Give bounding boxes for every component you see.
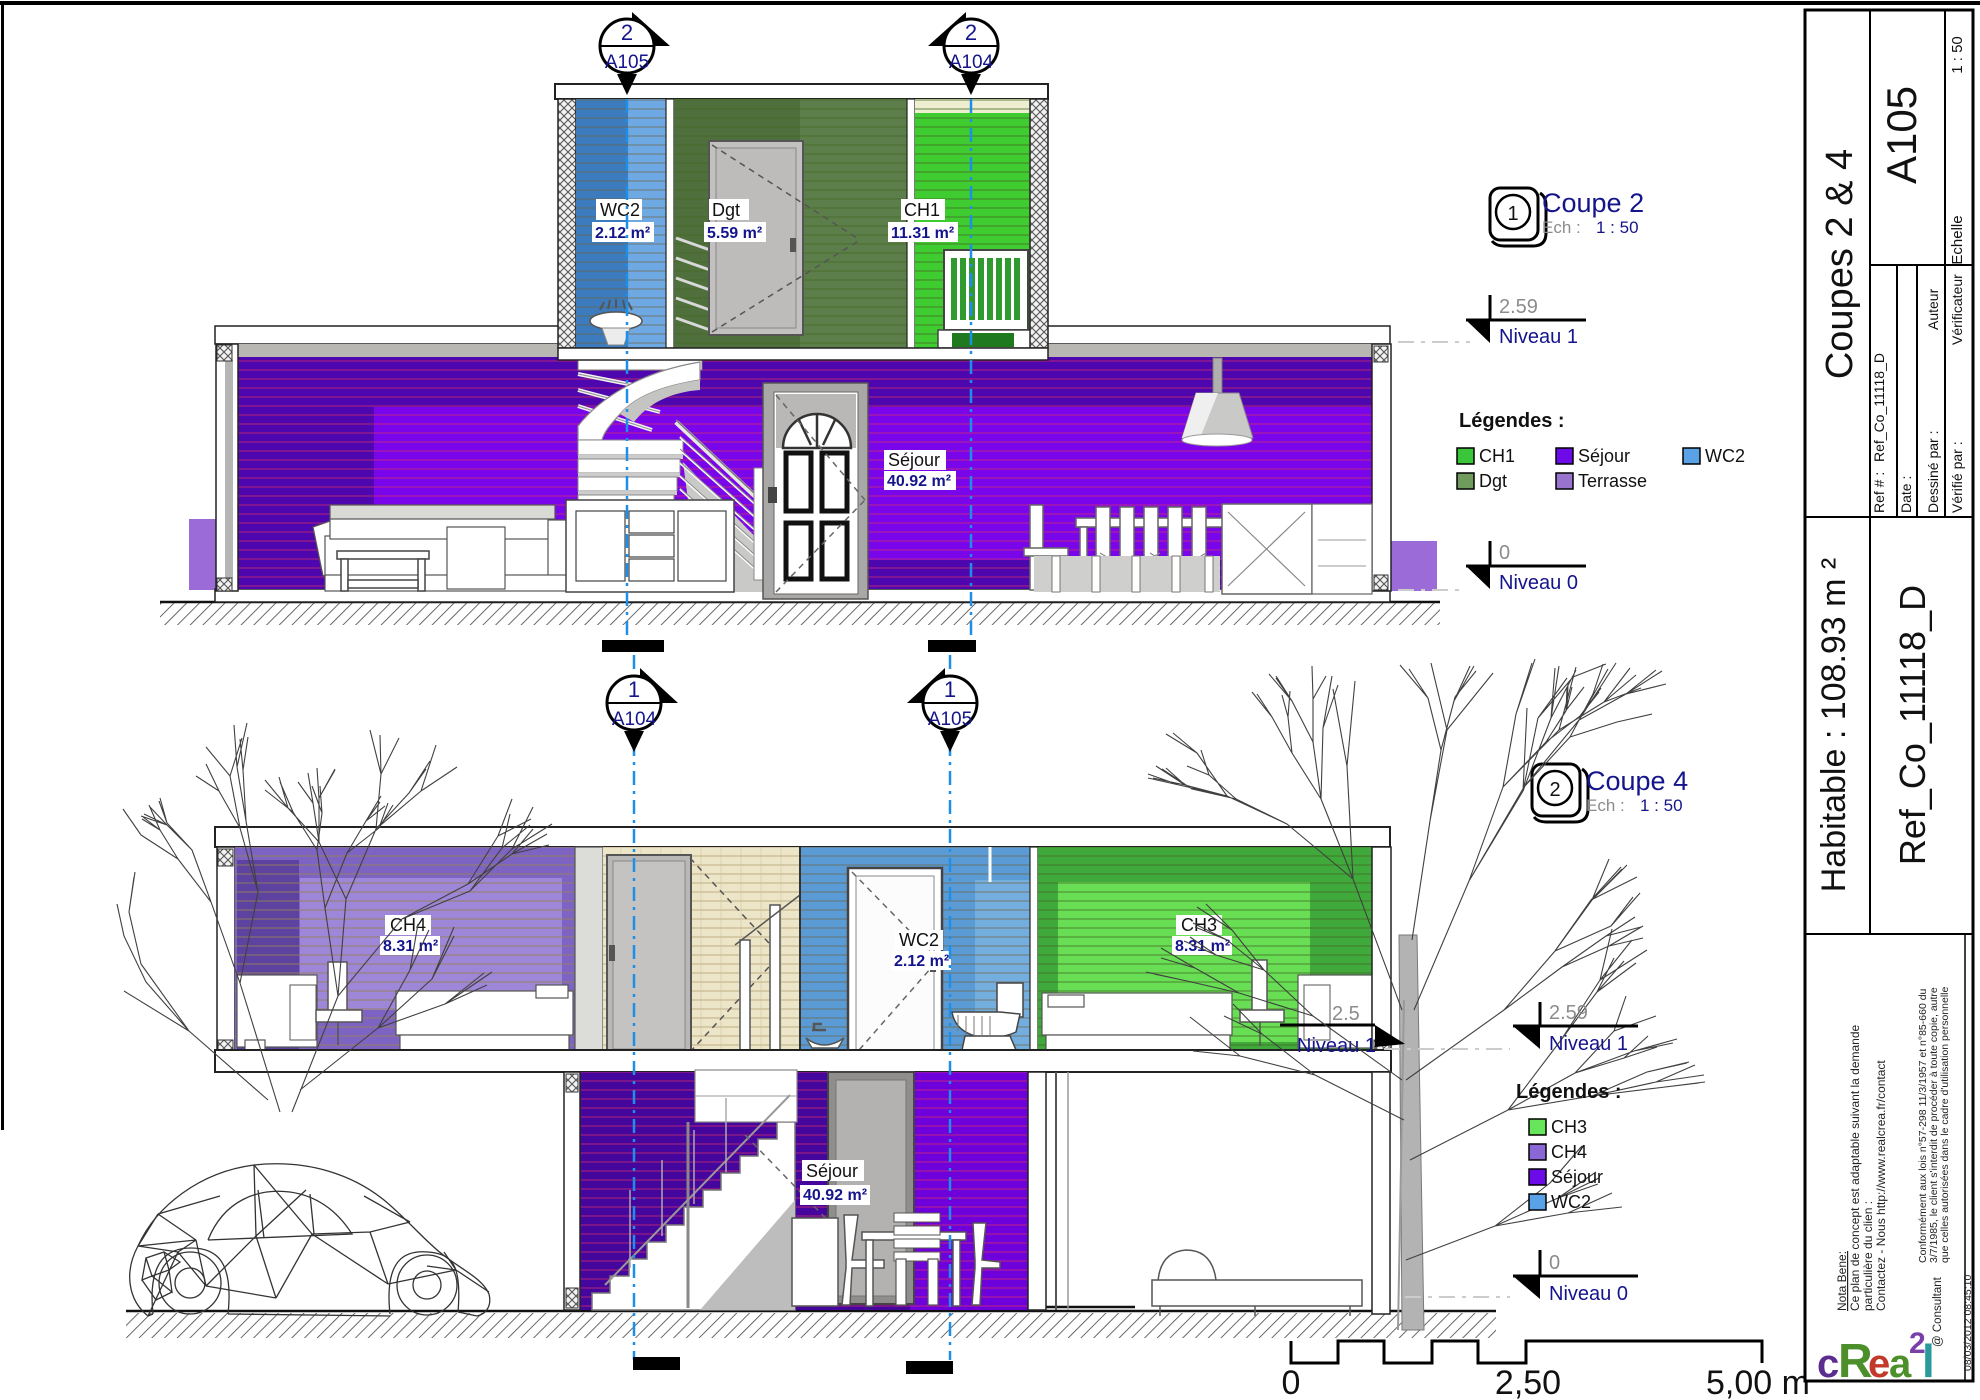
svg-text:40.92 m²: 40.92 m² (887, 473, 951, 490)
svg-text:Niveau 1: Niveau 1 (1297, 1035, 1376, 1057)
svg-text:Séjour: Séjour (1551, 1167, 1603, 1187)
svg-text:Séjour: Séjour (806, 1161, 858, 1181)
svg-text:CH4: CH4 (1551, 1142, 1587, 1162)
svg-text:0: 0 (1282, 1364, 1301, 1400)
svg-text:Terrasse: Terrasse (1578, 471, 1647, 491)
svg-text:Niveau 0: Niveau 0 (1499, 572, 1578, 594)
svg-text:CH3: CH3 (1551, 1117, 1587, 1137)
svg-text:c: c (1817, 1342, 1839, 1386)
svg-text:Légendes :: Légendes : (1459, 410, 1565, 432)
svg-text:A104: A104 (949, 52, 994, 73)
svg-text:Echelle: Echelle (1949, 215, 1966, 264)
svg-text:2: 2 (1549, 779, 1560, 801)
svg-text:A105: A105 (928, 709, 972, 730)
svg-text:1 : 50: 1 : 50 (1640, 796, 1683, 815)
svg-text:A105: A105 (1878, 86, 1925, 184)
svg-text:Niveau 0: Niveau 0 (1549, 1283, 1628, 1305)
svg-text:Coupe 2: Coupe 2 (1542, 188, 1644, 218)
svg-text:5,00 m: 5,00 m (1706, 1364, 1810, 1400)
svg-text:1 : 50: 1 : 50 (1596, 218, 1639, 237)
svg-text:Dgt: Dgt (712, 200, 740, 220)
svg-text:Date :: Date : (1898, 476, 1914, 513)
svg-text:Coupe 4: Coupe 4 (1586, 766, 1688, 796)
svg-text:Niveau 1: Niveau 1 (1549, 1033, 1628, 1055)
svg-text:0: 0 (1549, 1252, 1560, 1274)
svg-text:2,50: 2,50 (1495, 1364, 1561, 1400)
svg-text:Légendes :: Légendes : (1516, 1081, 1622, 1103)
svg-text:8.31 m²: 8.31 m² (1175, 938, 1230, 955)
svg-text:CH4: CH4 (390, 915, 426, 935)
svg-text:Contactez - Nous http://www.re: Contactez - Nous http://www.realcrea.fr/… (1874, 1060, 1888, 1311)
svg-text:A104: A104 (612, 709, 657, 730)
svg-text:2.59: 2.59 (1549, 1002, 1588, 1024)
svg-text:1: 1 (628, 677, 640, 702)
svg-text:Ref_Co_11118_D: Ref_Co_11118_D (1892, 585, 1933, 865)
svg-text:2.59: 2.59 (1499, 296, 1538, 318)
svg-text:Auteur: Auteur (1925, 288, 1941, 330)
svg-text:WC2: WC2 (1551, 1192, 1591, 1212)
svg-text:2.12 m²: 2.12 m² (894, 953, 949, 970)
svg-text:WC2: WC2 (899, 930, 939, 950)
svg-text:WC2: WC2 (1705, 446, 1745, 466)
svg-text:Séjour: Séjour (888, 450, 940, 470)
svg-text:Ech :: Ech : (1586, 796, 1625, 815)
svg-text:que celles autorisées dans le: que celles autorisées dans le cadre d'ut… (1939, 986, 1951, 1263)
svg-text:2: 2 (965, 20, 977, 45)
svg-text:Nota Bene:: Nota Bene: (1835, 1251, 1849, 1311)
svg-text:Dgt: Dgt (1479, 471, 1507, 491)
svg-text:l: l (1922, 1335, 1935, 1387)
svg-text:WC2: WC2 (600, 200, 640, 220)
svg-text:Dessiné par :: Dessiné par : (1925, 431, 1941, 513)
svg-text:Ech :: Ech : (1542, 218, 1581, 237)
svg-text:Vérificateur: Vérificateur (1949, 274, 1965, 345)
svg-text:0: 0 (1499, 542, 1510, 564)
svg-text:CH1: CH1 (904, 200, 940, 220)
svg-text:Ref_Co_11118_D: Ref_Co_11118_D (1871, 353, 1887, 462)
svg-text:2: 2 (621, 20, 633, 45)
svg-text:e: e (1868, 1342, 1890, 1386)
svg-text:40.92 m²: 40.92 m² (803, 1187, 867, 1204)
svg-text:1: 1 (944, 677, 956, 702)
svg-text:1 : 50: 1 : 50 (1949, 36, 1966, 74)
svg-text:2.12 m²: 2.12 m² (595, 225, 650, 242)
svg-text:Ce plan de concept est adaptab: Ce plan de concept est adaptable suivant… (1848, 1024, 1862, 1311)
svg-text:Niveau 1: Niveau 1 (1499, 326, 1578, 348)
svg-text:Ref # :: Ref # : (1871, 472, 1887, 513)
svg-text:Vérifié par :: Vérifié par : (1949, 441, 1965, 513)
svg-text:8.31 m²: 8.31 m² (383, 938, 438, 955)
svg-text:08/03/2012 08:45:10: 08/03/2012 08:45:10 (1962, 1274, 1974, 1371)
svg-text:2.5: 2.5 (1332, 1003, 1360, 1025)
svg-text:Coupes 2 & 4: Coupes 2 & 4 (1819, 149, 1861, 379)
svg-text:11.31 m²: 11.31 m² (891, 225, 954, 242)
svg-text:CH1: CH1 (1479, 446, 1515, 466)
svg-text:Habitable : 108.93 m ²: Habitable : 108.93 m ² (1815, 558, 1853, 893)
svg-text:1: 1 (1507, 203, 1518, 225)
svg-text:5.59 m²: 5.59 m² (707, 225, 762, 242)
svg-text:particulière du clien :: particulière du clien : (1861, 1201, 1875, 1311)
svg-text:A105: A105 (605, 52, 649, 73)
svg-text:Séjour: Séjour (1578, 446, 1630, 466)
